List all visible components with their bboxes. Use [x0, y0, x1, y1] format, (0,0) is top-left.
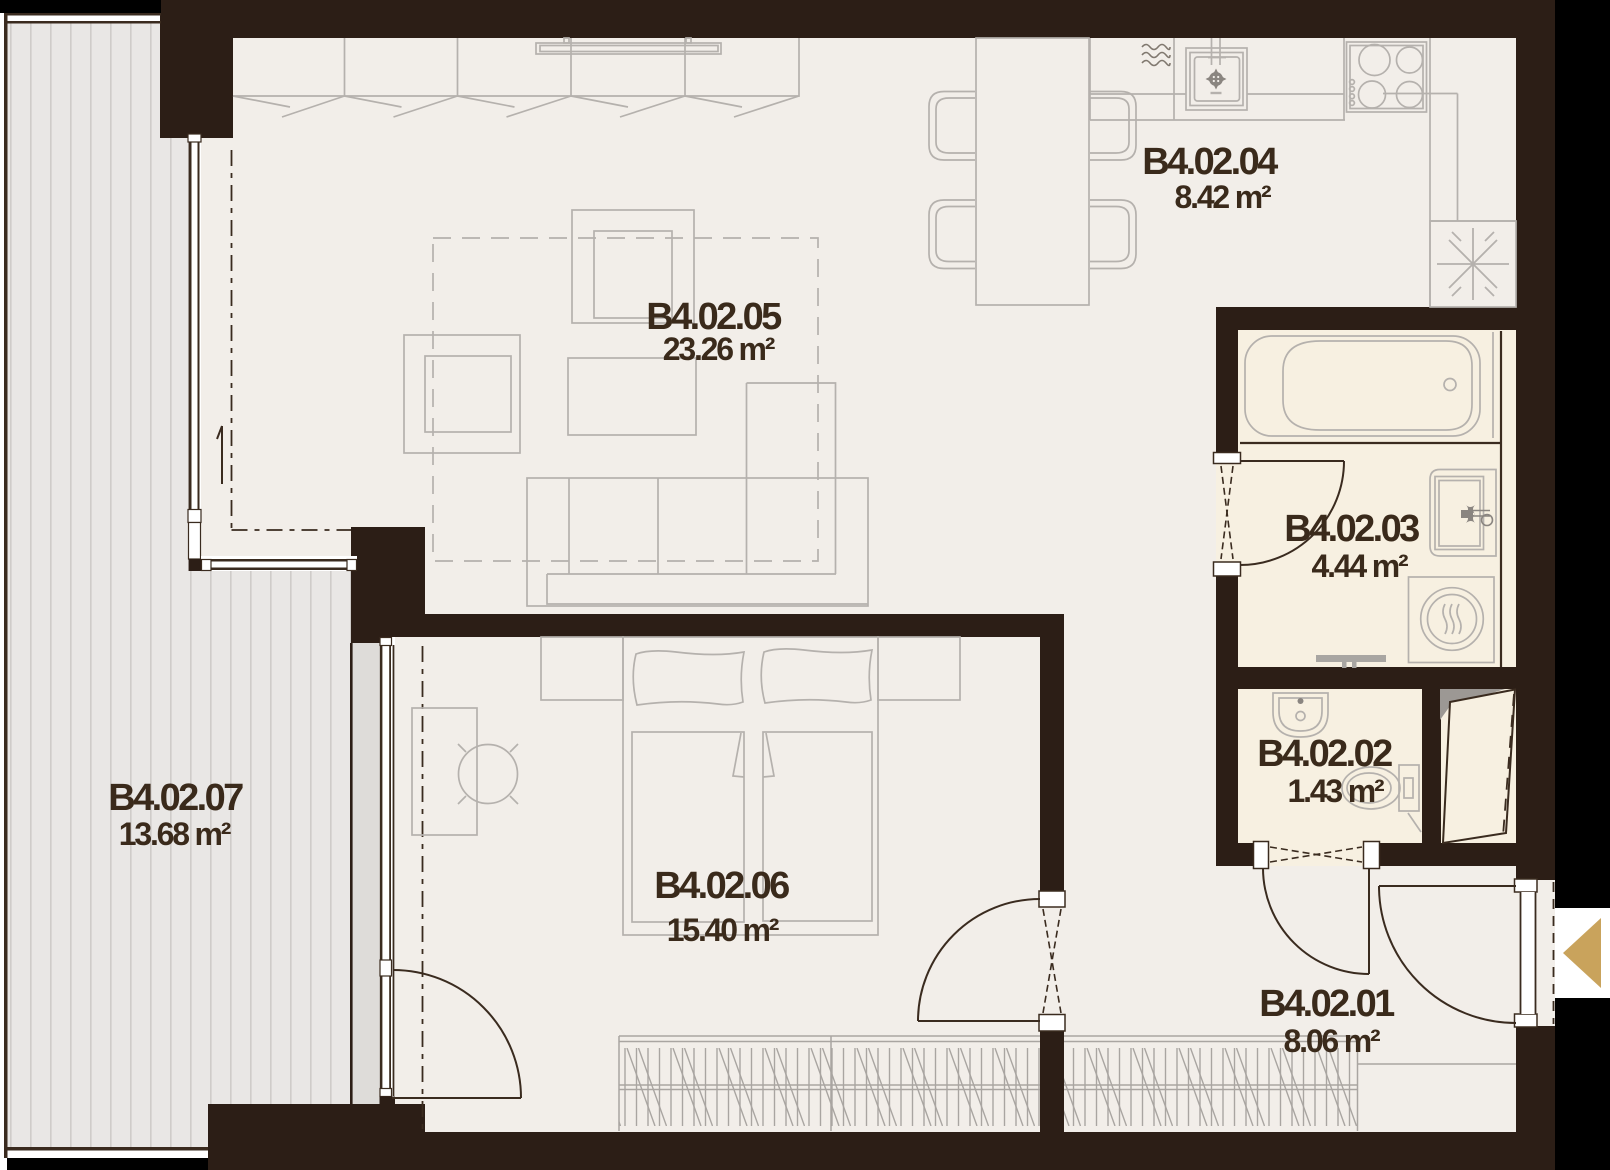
- svg-text:B4.02.04: B4.02.04: [1142, 141, 1278, 183]
- svg-text:B4.02.06: B4.02.06: [654, 865, 789, 907]
- svg-text:B4.02.03: B4.02.03: [1284, 508, 1419, 550]
- svg-text:1.43 m²: 1.43 m²: [1288, 773, 1384, 809]
- svg-text:B4.02.07: B4.02.07: [108, 777, 243, 819]
- svg-text:15.40 m²: 15.40 m²: [667, 912, 779, 948]
- svg-text:8.06 m²: 8.06 m²: [1284, 1023, 1380, 1059]
- svg-text:4.44 m²: 4.44 m²: [1312, 548, 1408, 584]
- svg-text:13.68 m²: 13.68 m²: [119, 816, 231, 852]
- svg-text:B4.02.02: B4.02.02: [1257, 733, 1392, 775]
- svg-text:B4.02.01: B4.02.01: [1259, 983, 1395, 1025]
- svg-text:8.42 m²: 8.42 m²: [1175, 179, 1271, 215]
- svg-text:23.26 m²: 23.26 m²: [663, 331, 775, 367]
